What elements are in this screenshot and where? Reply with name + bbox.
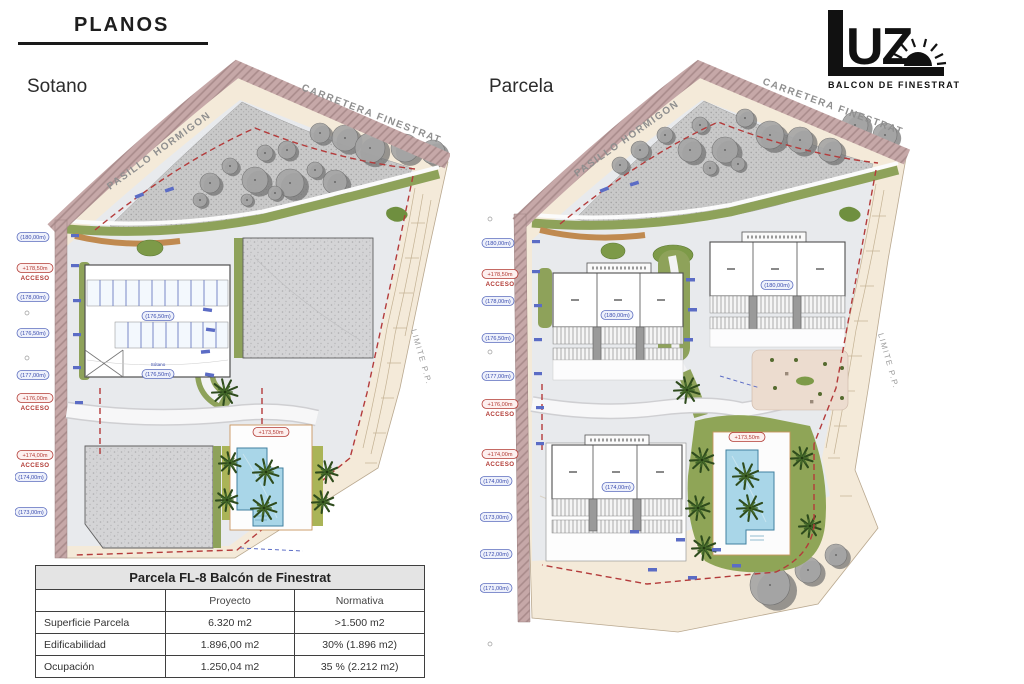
elevation-label: (180,00m) [17,233,49,242]
access-label: ACCESO [21,275,50,282]
svg-text:+178,50m: +178,50m [487,272,512,278]
svg-text:+176,00m: +176,00m [22,396,47,402]
access-label: ACCESO [486,411,515,418]
green-strip-plot-south [213,446,221,548]
elevation-label: (173,00m) [15,508,47,517]
svg-text:(176,50m): (176,50m) [485,336,511,342]
access-elevation-label: +176,00m [482,400,518,409]
svg-text:+173,50m: +173,50m [258,430,283,436]
garage-level-label: (176,50m) [142,370,174,379]
svg-text:(174,00m): (174,00m) [483,479,509,485]
left-path-strip [55,220,67,558]
parcela-plan-drawing: CARRETERA FINESTRAT PASILLO HORMIGON LIM… [480,56,935,662]
row-proyecto: 1.250,04 m2 [165,656,295,678]
pool-area [222,425,323,530]
elevation-label: (173,00m) [480,513,512,522]
table-col-empty [36,590,166,612]
svg-text:+178,50m: +178,50m [22,266,47,272]
elevation-label: (171,00m) [480,584,512,593]
grass-mound [601,243,625,259]
limit-label: LIMITE P.P. [876,332,901,390]
svg-text:(180,00m): (180,00m) [604,313,630,319]
gravel-plot-north [243,238,373,358]
row-label: Edificabilidad [36,634,166,656]
grass-mound [137,240,163,256]
green-strip-west [538,268,552,328]
table-col-proyecto: Proyecto [165,590,295,612]
row-proyecto: 1.896,00 m2 [165,634,295,656]
svg-text:+174,00m: +174,00m [487,452,512,458]
title-underline [18,42,208,45]
svg-text:(172,00m): (172,00m) [483,552,509,558]
svg-text:(180,00m): (180,00m) [20,235,46,241]
green-strip-plot [234,238,243,358]
svg-text:+174,00m: +174,00m [22,453,47,459]
svg-text:(176,50m): (176,50m) [145,372,171,378]
access-elevation-label: +174,00m [482,450,518,459]
elevation-label: (177,00m) [17,371,49,380]
access-label: ACCESO [486,461,515,468]
access-elevation-label: +176,00m [17,394,53,403]
svg-text:(180,00m): (180,00m) [485,241,511,247]
svg-text:(171,00m): (171,00m) [483,586,509,592]
svg-text:(178,00m): (178,00m) [20,295,46,301]
elevation-label: (174,00m) [480,477,512,486]
central-road [67,410,317,418]
svg-text:(176,50m): (176,50m) [20,331,46,337]
access-elevation-label: +178,50m [482,270,518,279]
pool-level-label: +173,50m [729,433,765,442]
garage-name-label: Sótano [151,362,166,367]
svg-text:(173,00m): (173,00m) [18,510,44,516]
block-a-level-label: (180,00m) [601,311,633,320]
table-title: Parcela FL-8 Balcón de Finestrat [36,566,425,590]
limit-label: LIMITE P.P. [409,328,434,386]
garage-level-label: (176,50m) [142,312,174,321]
row-normativa: >1.500 m2 [295,612,425,634]
elevation-label: (172,00m) [480,550,512,559]
row-label: Ocupación [36,656,166,678]
basement-garage-building [85,265,230,377]
page-title: PLANOS [74,14,169,37]
svg-text:(174,00m): (174,00m) [18,475,44,481]
access-elevation-label: +178,50m [17,264,53,273]
svg-text:(176,50m): (176,50m) [145,314,171,320]
table-row: Superficie Parcela 6.320 m2 >1.500 m2 [36,612,425,634]
svg-text:(178,00m): (178,00m) [485,299,511,305]
row-proyecto: 6.320 m2 [165,612,295,634]
access-label: ACCESO [21,462,50,469]
elevation-label: (178,00m) [482,297,514,306]
spec-table: Parcela FL-8 Balcón de Finestrat Proyect… [35,565,425,678]
block-c-level-label: (174,00m) [602,483,634,492]
table-row: Edificabilidad 1.896,00 m2 30% (1.896 m2… [36,634,425,656]
row-normativa: 35 % (2.212 m2) [295,656,425,678]
utility-dashed [240,548,303,551]
row-normativa: 30% (1.896 m2) [295,634,425,656]
pool-level-label: +173,50m [253,428,289,437]
terrace-garden [752,350,848,410]
elevation-label: (178,00m) [17,293,49,302]
table-col-normativa: Normativa [295,590,425,612]
block-b-level-label: (180,00m) [761,281,793,290]
svg-text:(173,00m): (173,00m) [483,515,509,521]
elevation-label: (176,50m) [482,334,514,343]
villa-block-c [546,435,686,561]
access-elevation-label: +174,00m [17,451,53,460]
elevation-label: (176,50m) [17,329,49,338]
svg-text:(177,00m): (177,00m) [20,373,46,379]
svg-text:+176,00m: +176,00m [487,402,512,408]
svg-text:(177,00m): (177,00m) [485,374,511,380]
villa-block-a [553,263,683,380]
sotano-plan-drawing: CARRETERA FINESTRAT PASILLO HORMIGON LIM… [15,58,450,570]
elevation-label: (180,00m) [482,239,514,248]
elevation-label: (174,00m) [15,473,47,482]
svg-text:(180,00m): (180,00m) [764,283,790,289]
elevation-label: (177,00m) [482,372,514,381]
row-label: Superficie Parcela [36,612,166,634]
table-row: Ocupación 1.250,04 m2 35 % (2.212 m2) [36,656,425,678]
svg-text:(174,00m): (174,00m) [605,485,631,491]
access-label: ACCESO [21,405,50,412]
svg-text:+173,50m: +173,50m [734,435,759,441]
gravel-plot-south [85,446,213,548]
access-label: ACCESO [486,281,515,288]
